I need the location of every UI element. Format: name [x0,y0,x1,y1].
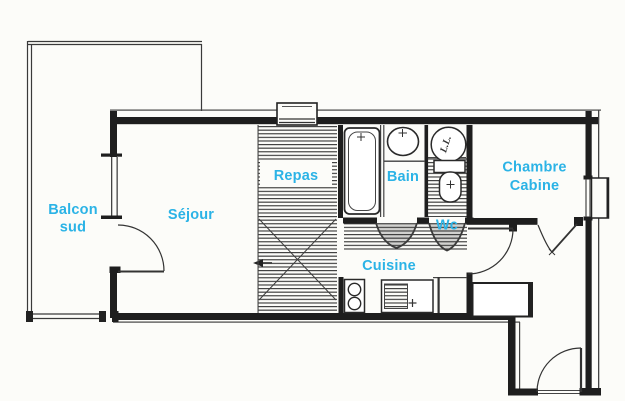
hall-door [468,229,513,275]
window-top [277,103,317,125]
stove [345,280,365,313]
wc-label: Wc [436,218,458,234]
dining-floor-hatch [258,125,337,313]
railing-end-cap [26,311,33,322]
washing-machine: L.L. [431,127,466,162]
bathroom-sink [388,128,419,156]
living-room-label: Séjour [168,207,214,223]
floor-plan-image: L.L. [0,0,625,401]
dining-label: Repas [274,168,319,184]
balcony-label-line1: Balcon [48,202,98,218]
floor-plan-page: L.L. [0,0,625,401]
balcony-door [118,225,164,272]
balcony-label-line2: sud [60,220,86,236]
railing-end-cap [99,311,106,322]
bathtub [345,128,380,214]
window-bedroom [585,178,609,218]
bedroom-door [538,224,577,255]
bath-label: Bain [387,169,419,185]
entry-closet [473,283,533,317]
entry-door [537,348,581,392]
kitchen-label: Cuisine [362,258,416,274]
bedroom-label-line2: Cabine [510,178,560,194]
kitchen-counter [382,280,434,313]
bedroom-label-line1: Chambre [502,160,566,176]
